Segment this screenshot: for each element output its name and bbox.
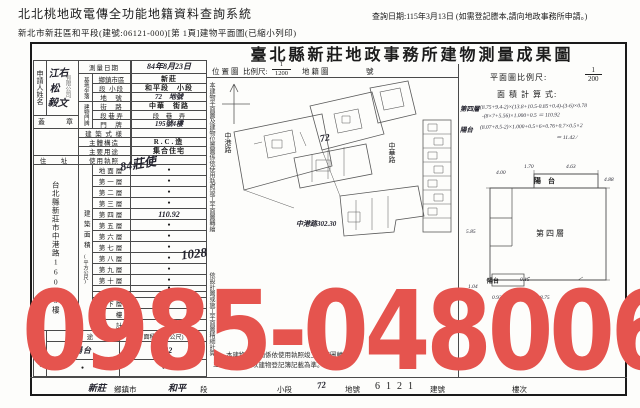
query-date: 查詢日期:115年3月13日 (如需登記謄本,請向地政事務所申請。) <box>372 11 587 22</box>
dim-label: 4.88 <box>604 176 614 184</box>
site-location-label: 基地坐落 <box>78 73 93 101</box>
dim-label: 1.70 <box>524 163 534 171</box>
street-label-right: 中華路 <box>388 142 395 188</box>
floor-row: 第五層● <box>93 220 207 231</box>
lane-row: 段 巷 弄 段 巷 弄 <box>93 110 207 119</box>
watermark-phone-number: 0985-048006 <box>22 279 640 384</box>
district-label: 鄉鎮市區 <box>93 74 131 83</box>
sketch-balcony-top-label: 陽 台 <box>534 176 555 186</box>
calc-line: -(8×7+5.56)×1.000+0.5 ＝ 110.92 <box>482 111 560 121</box>
floor-row: 第二層● <box>93 187 207 198</box>
form-title: 臺北縣新莊地政事務所建物測量成果圖 <box>200 44 624 62</box>
lot-label: 地 號 <box>93 93 131 101</box>
structure-value: R.C.造 <box>131 138 207 146</box>
applicant-name-cell: 江右松 有限公司 毅文 <box>47 60 78 115</box>
location-scale-fraction: 1 1200 <box>272 62 291 77</box>
section-value: 和平段 小段 <box>131 84 207 92</box>
door-no-label: 門 牌 <box>93 120 131 128</box>
dim-label: 4.00 <box>496 169 506 177</box>
style-label: 建 築 式 樣 <box>78 129 131 137</box>
document-subtitle: 新北市新莊區和平段(建號:06121-000)[第 1頁]建物平面圖(已縮小列印… <box>18 27 297 39</box>
applicant-label: 申請人姓名 <box>33 60 47 115</box>
plan-scale-fraction: 1 200 <box>585 67 602 83</box>
sketch-room-label: 第四層 <box>536 228 566 239</box>
dim-label: 5.85 <box>466 228 476 236</box>
usage-label: 主要用途 <box>78 147 131 155</box>
district-value: 新莊 <box>131 74 207 83</box>
door-no-value: 195號4樓 <box>131 120 207 128</box>
section-row: 段 小段 和平段 小段 <box>93 83 207 92</box>
location-map-sketch <box>220 80 455 238</box>
dim-label: 4.63 <box>566 163 576 171</box>
survey-date-label: 測量日期 <box>78 60 131 73</box>
lot-row: 地 號 72 地號 <box>93 92 207 101</box>
location-scale-label: 比例尺: <box>243 66 268 77</box>
location-map-label: 位置圖 <box>212 66 241 77</box>
seal-row: 蓋 章 <box>33 115 78 128</box>
lot-value: 72 地號 <box>131 93 207 101</box>
empty-cell <box>33 128 78 155</box>
plan-scale-label: 平面圖比例尺: <box>490 72 547 83</box>
street-label: 街 路 <box>93 102 131 110</box>
lane-label: 段 巷 弄 <box>93 111 131 119</box>
street-value: 中華 街路 <box>131 102 207 110</box>
floor-row: 第一層● <box>93 176 207 187</box>
street-label-left: 中港路 <box>224 132 231 174</box>
floor-row-fourth: 第四層110.92 <box>93 209 207 220</box>
divider <box>207 77 458 78</box>
calc-line: ＝ 11.42 ∕ <box>556 134 577 142</box>
scanned-survey-document: 北北桃地政電傳全功能地籍資料查詢系統 新北市新莊區和平段(建號:06121-00… <box>0 0 640 408</box>
structure-row: 主體構造 R.C.造 <box>78 137 207 146</box>
seal-label-right: 章 <box>66 117 73 127</box>
system-title: 北北桃地政電傳全功能地籍資料查詢系統 <box>18 5 252 22</box>
style-row: 建 築 式 樣 <box>78 128 207 137</box>
survey-date-value: 84年8月23日 <box>131 60 207 73</box>
license-handwriting-b: 1028 <box>180 244 208 263</box>
structure-label: 主體構造 <box>78 138 131 146</box>
door-plate-label: 建物門牌 <box>78 101 93 128</box>
floor-area-label: 建築面積 <box>82 210 89 252</box>
district-row: 鄉鎮市區 新莊 <box>93 73 207 83</box>
section-label: 段 小段 <box>93 84 131 92</box>
cadastral-map-no-suffix: 號 <box>366 66 374 77</box>
calc-name-balcony: 陽台 <box>460 124 473 134</box>
floor-row: 第六層● <box>93 231 207 242</box>
street-row: 街 路 中華 街路 <box>93 101 207 110</box>
area-calc-label: 面 積 計 算 式: <box>497 89 557 100</box>
style-value <box>131 129 207 137</box>
vertical-note-1: 本建物平面圖及建物位置圖係依使用執照竣工平面圖轉繪 <box>208 82 214 267</box>
survey-date-row: 測量日期 84年8月23日 <box>78 60 207 73</box>
floor-row: 第三層● <box>93 198 207 209</box>
fourth-floor-area-handwriting: 110.92 <box>131 209 207 219</box>
street-bottom-handwriting: 中港路302.30 <box>296 219 336 229</box>
cadastral-map-label: 地籍圖 <box>302 66 331 77</box>
seal-label-left: 蓋 <box>38 117 45 127</box>
door-no-row: 門 牌 195號4樓 <box>93 119 207 128</box>
lot-number-handwriting: 72 <box>319 132 331 145</box>
address-label: 住 址 <box>33 155 78 164</box>
lane-value: 段 巷 弄 <box>131 111 207 119</box>
calc-name-fourth-floor: 第四層 <box>460 103 480 113</box>
applicant-name2-handwriting: 毅文 <box>48 93 69 109</box>
